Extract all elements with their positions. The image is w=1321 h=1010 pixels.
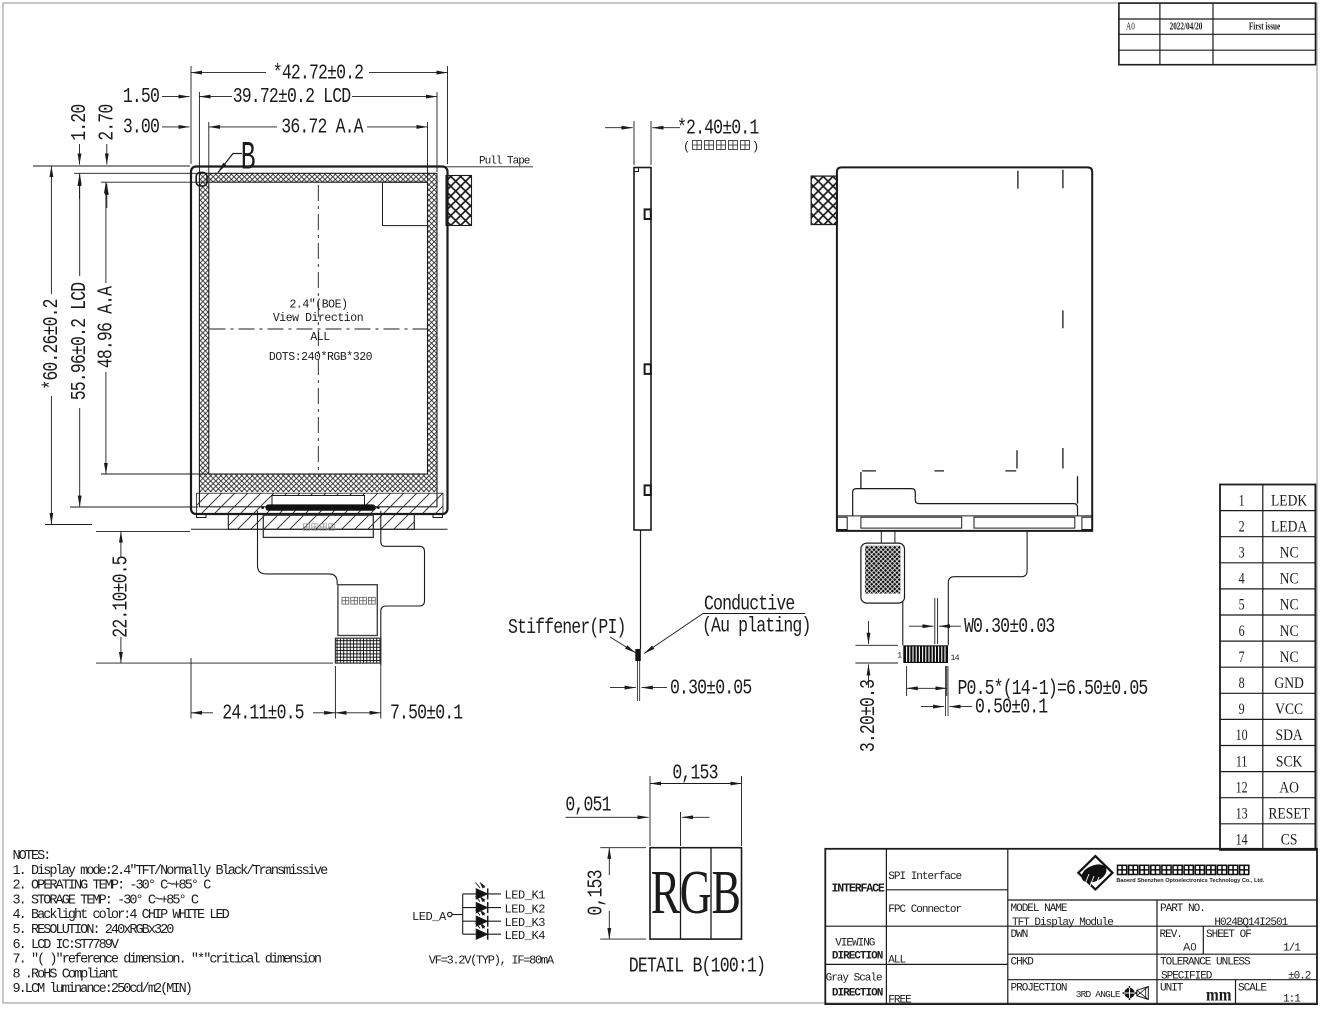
svg-text:): ) bbox=[752, 140, 758, 154]
svg-text:48.96 A.A: 48.96 A.A bbox=[94, 285, 118, 368]
svg-text:36.72 A.A: 36.72 A.A bbox=[281, 115, 364, 139]
svg-text:SPI Interface: SPI Interface bbox=[888, 871, 961, 883]
svg-text:CS: CS bbox=[1281, 832, 1298, 849]
svg-text:0,153: 0,153 bbox=[584, 870, 608, 916]
svg-text:5: 5 bbox=[1239, 596, 1245, 614]
svg-text:RESET: RESET bbox=[1268, 806, 1310, 823]
svg-text:3RD ANGLE: 3RD ANGLE bbox=[1076, 989, 1121, 1000]
svg-text:ALL: ALL bbox=[888, 955, 905, 967]
svg-text:NC: NC bbox=[1280, 545, 1299, 562]
svg-text:VIEWING: VIEWING bbox=[835, 937, 875, 949]
svg-text:First issue: First issue bbox=[1249, 20, 1280, 31]
svg-text:AO: AO bbox=[1279, 779, 1299, 796]
svg-text:12: 12 bbox=[1236, 779, 1248, 797]
svg-text:13: 13 bbox=[1236, 805, 1248, 823]
svg-text:B: B bbox=[711, 857, 740, 927]
svg-text:A0: A0 bbox=[1126, 20, 1135, 31]
svg-text:NC: NC bbox=[1280, 623, 1299, 640]
svg-text:LED_K1: LED_K1 bbox=[505, 889, 546, 903]
svg-text:3: 3 bbox=[1239, 544, 1245, 562]
svg-text:DOTS:240*RGB*320: DOTS:240*RGB*320 bbox=[269, 351, 373, 364]
svg-text:TOLERANCE UNLESS: TOLERANCE UNLESS bbox=[1160, 957, 1251, 969]
svg-text:0.50±0.1: 0.50±0.1 bbox=[975, 695, 1048, 719]
svg-text:REV.: REV. bbox=[1160, 929, 1182, 941]
svg-text:LED_K4: LED_K4 bbox=[505, 929, 546, 943]
svg-text:*60.26±0.2: *60.26±0.2 bbox=[39, 299, 63, 389]
svg-text:VCC: VCC bbox=[1275, 701, 1303, 718]
svg-text:LED_K3: LED_K3 bbox=[505, 916, 546, 930]
svg-text:7: 7 bbox=[1239, 648, 1245, 666]
svg-text:(: ( bbox=[683, 140, 689, 154]
svg-text:DIRECTION: DIRECTION bbox=[832, 951, 883, 963]
svg-text:1. Display mode:2.4"TFT/Normal: 1. Display mode:2.4"TFT/Normally Black/T… bbox=[13, 864, 329, 879]
svg-text:*42.72±0.2: *42.72±0.2 bbox=[273, 61, 363, 85]
svg-text:6. LCD IC:ST7789V: 6. LCD IC:ST7789V bbox=[13, 938, 120, 953]
svg-text:NC: NC bbox=[1280, 597, 1299, 614]
svg-text:PROJECTION: PROJECTION bbox=[1011, 983, 1067, 995]
svg-text:55.96±0.2 LCD: 55.96±0.2 LCD bbox=[67, 282, 91, 400]
svg-text:LEDK: LEDK bbox=[1271, 492, 1307, 509]
svg-text:LED_K2: LED_K2 bbox=[505, 902, 546, 916]
svg-text:SCALE: SCALE bbox=[1238, 983, 1267, 995]
svg-text:B: B bbox=[241, 135, 256, 181]
svg-text:22.10±0.5: 22.10±0.5 bbox=[109, 556, 133, 638]
svg-text:0.30±0.05: 0.30±0.05 bbox=[670, 676, 752, 700]
svg-text:G: G bbox=[680, 857, 712, 927]
svg-text:View Direction: View Direction bbox=[273, 312, 363, 325]
svg-text:9.LCM luminance:250cd/m2(MIN): 9.LCM luminance:250cd/m2(MIN) bbox=[13, 982, 191, 997]
svg-text:ALL: ALL bbox=[310, 331, 330, 344]
svg-text:PART NO.: PART NO. bbox=[1160, 903, 1205, 915]
svg-text:CHKD: CHKD bbox=[1011, 957, 1035, 969]
svg-text:FREE: FREE bbox=[888, 994, 912, 1006]
svg-text:(Au plating): (Au plating) bbox=[702, 614, 811, 638]
svg-text:7.50±0.1: 7.50±0.1 bbox=[390, 701, 463, 725]
svg-text:LED_A: LED_A bbox=[412, 910, 447, 924]
svg-text:Gray Scale: Gray Scale bbox=[826, 973, 882, 985]
svg-text:Conductive: Conductive bbox=[704, 592, 795, 616]
svg-text:A0: A0 bbox=[1183, 942, 1196, 954]
svg-text:mm: mm bbox=[1206, 984, 1232, 1004]
svg-text:Pull Tape: Pull Tape bbox=[479, 156, 530, 168]
svg-text:8: 8 bbox=[1239, 674, 1245, 692]
svg-text:6: 6 bbox=[1239, 622, 1245, 640]
svg-text:2.4"(BOE): 2.4"(BOE) bbox=[289, 299, 347, 312]
svg-text:*2.40±0.1: *2.40±0.1 bbox=[677, 116, 759, 140]
svg-text:SCK: SCK bbox=[1276, 753, 1303, 770]
svg-text:LEDA: LEDA bbox=[1271, 518, 1307, 535]
svg-text:NOTES:: NOTES: bbox=[13, 849, 50, 864]
svg-text:Baoerd Shenzhen Optoelectronic: Baoerd Shenzhen Optoelectronics Technolo… bbox=[1116, 878, 1264, 884]
svg-text:DWN: DWN bbox=[1011, 929, 1028, 941]
svg-text:0,051: 0,051 bbox=[565, 793, 611, 817]
svg-text:2: 2 bbox=[1239, 518, 1245, 536]
svg-text:±0.2: ±0.2 bbox=[1288, 971, 1311, 983]
svg-text:2.70: 2.70 bbox=[95, 104, 119, 141]
svg-text:DETAIL B(100:1): DETAIL B(100:1) bbox=[629, 954, 765, 978]
svg-text:NC: NC bbox=[1280, 571, 1299, 588]
svg-text:TFT Display Module: TFT Display Module bbox=[1012, 917, 1113, 929]
svg-text:FPC Connector: FPC Connector bbox=[888, 904, 961, 916]
svg-text:VF=3.2V(TYP), IF=80mA: VF=3.2V(TYP), IF=80mA bbox=[429, 954, 555, 968]
svg-text:DIRECTION: DIRECTION bbox=[832, 987, 883, 999]
svg-text:INTERFACE: INTERFACE bbox=[832, 883, 885, 896]
svg-text:R: R bbox=[651, 857, 681, 927]
svg-text:2022/04/20: 2022/04/20 bbox=[1170, 20, 1203, 31]
svg-text:1/1: 1/1 bbox=[1283, 943, 1301, 955]
svg-text:14: 14 bbox=[1236, 831, 1248, 849]
svg-text:11: 11 bbox=[1236, 753, 1248, 771]
svg-text:Stiffener(PI): Stiffener(PI) bbox=[508, 615, 626, 639]
svg-text:3. STORAGE TEMP: -30° C~+85° C: 3. STORAGE TEMP: -30° C~+85° C bbox=[13, 893, 199, 908]
svg-text:0,153: 0,153 bbox=[672, 761, 718, 785]
svg-text:H024BQ14I2501: H024BQ14I2501 bbox=[1214, 917, 1288, 929]
svg-text:W0.30±0.03: W0.30±0.03 bbox=[964, 614, 1055, 638]
svg-text:39.72±0.2 LCD: 39.72±0.2 LCD bbox=[233, 84, 351, 108]
svg-text:1.20: 1.20 bbox=[67, 104, 91, 141]
svg-text:5. RESOLUTION: 240xRGBx320: 5. RESOLUTION: 240xRGBx320 bbox=[13, 923, 175, 938]
svg-text:10: 10 bbox=[1236, 727, 1248, 745]
svg-text:9: 9 bbox=[1239, 701, 1245, 719]
svg-text:3.20±0.3: 3.20±0.3 bbox=[856, 679, 880, 752]
svg-text:NC: NC bbox=[1280, 649, 1299, 666]
svg-text:SPECIFIED: SPECIFIED bbox=[1161, 971, 1213, 983]
svg-text:7. "( )"reference dimension. ": 7. "( )"reference dimension. "*"critical… bbox=[13, 953, 321, 968]
svg-text:SDA: SDA bbox=[1276, 727, 1303, 744]
svg-text:3.00: 3.00 bbox=[123, 115, 160, 139]
svg-text:1.50: 1.50 bbox=[123, 84, 160, 108]
svg-text:24.11±0.5: 24.11±0.5 bbox=[222, 701, 304, 725]
svg-text:SHEET OF: SHEET OF bbox=[1206, 929, 1251, 941]
svg-text:8 .RoHS Compliant: 8 .RoHS Compliant bbox=[13, 967, 118, 982]
svg-text:1: 1 bbox=[1239, 492, 1245, 510]
svg-text:4: 4 bbox=[1239, 570, 1245, 588]
svg-text:1:1: 1:1 bbox=[1283, 994, 1301, 1006]
svg-text:14: 14 bbox=[951, 654, 960, 663]
svg-text:1: 1 bbox=[897, 652, 902, 661]
svg-text:GND: GND bbox=[1274, 675, 1304, 692]
svg-text:2. OPERATING TEMP: -30° C~+85°: 2. OPERATING TEMP: -30° C~+85° C bbox=[13, 879, 212, 894]
svg-text:4. Backlight color:4 CHIP WHIT: 4. Backlight color:4 CHIP WHITE LED bbox=[13, 908, 230, 923]
svg-text:UNIT: UNIT bbox=[1160, 983, 1184, 995]
svg-text:MODEL NAME: MODEL NAME bbox=[1011, 903, 1068, 915]
